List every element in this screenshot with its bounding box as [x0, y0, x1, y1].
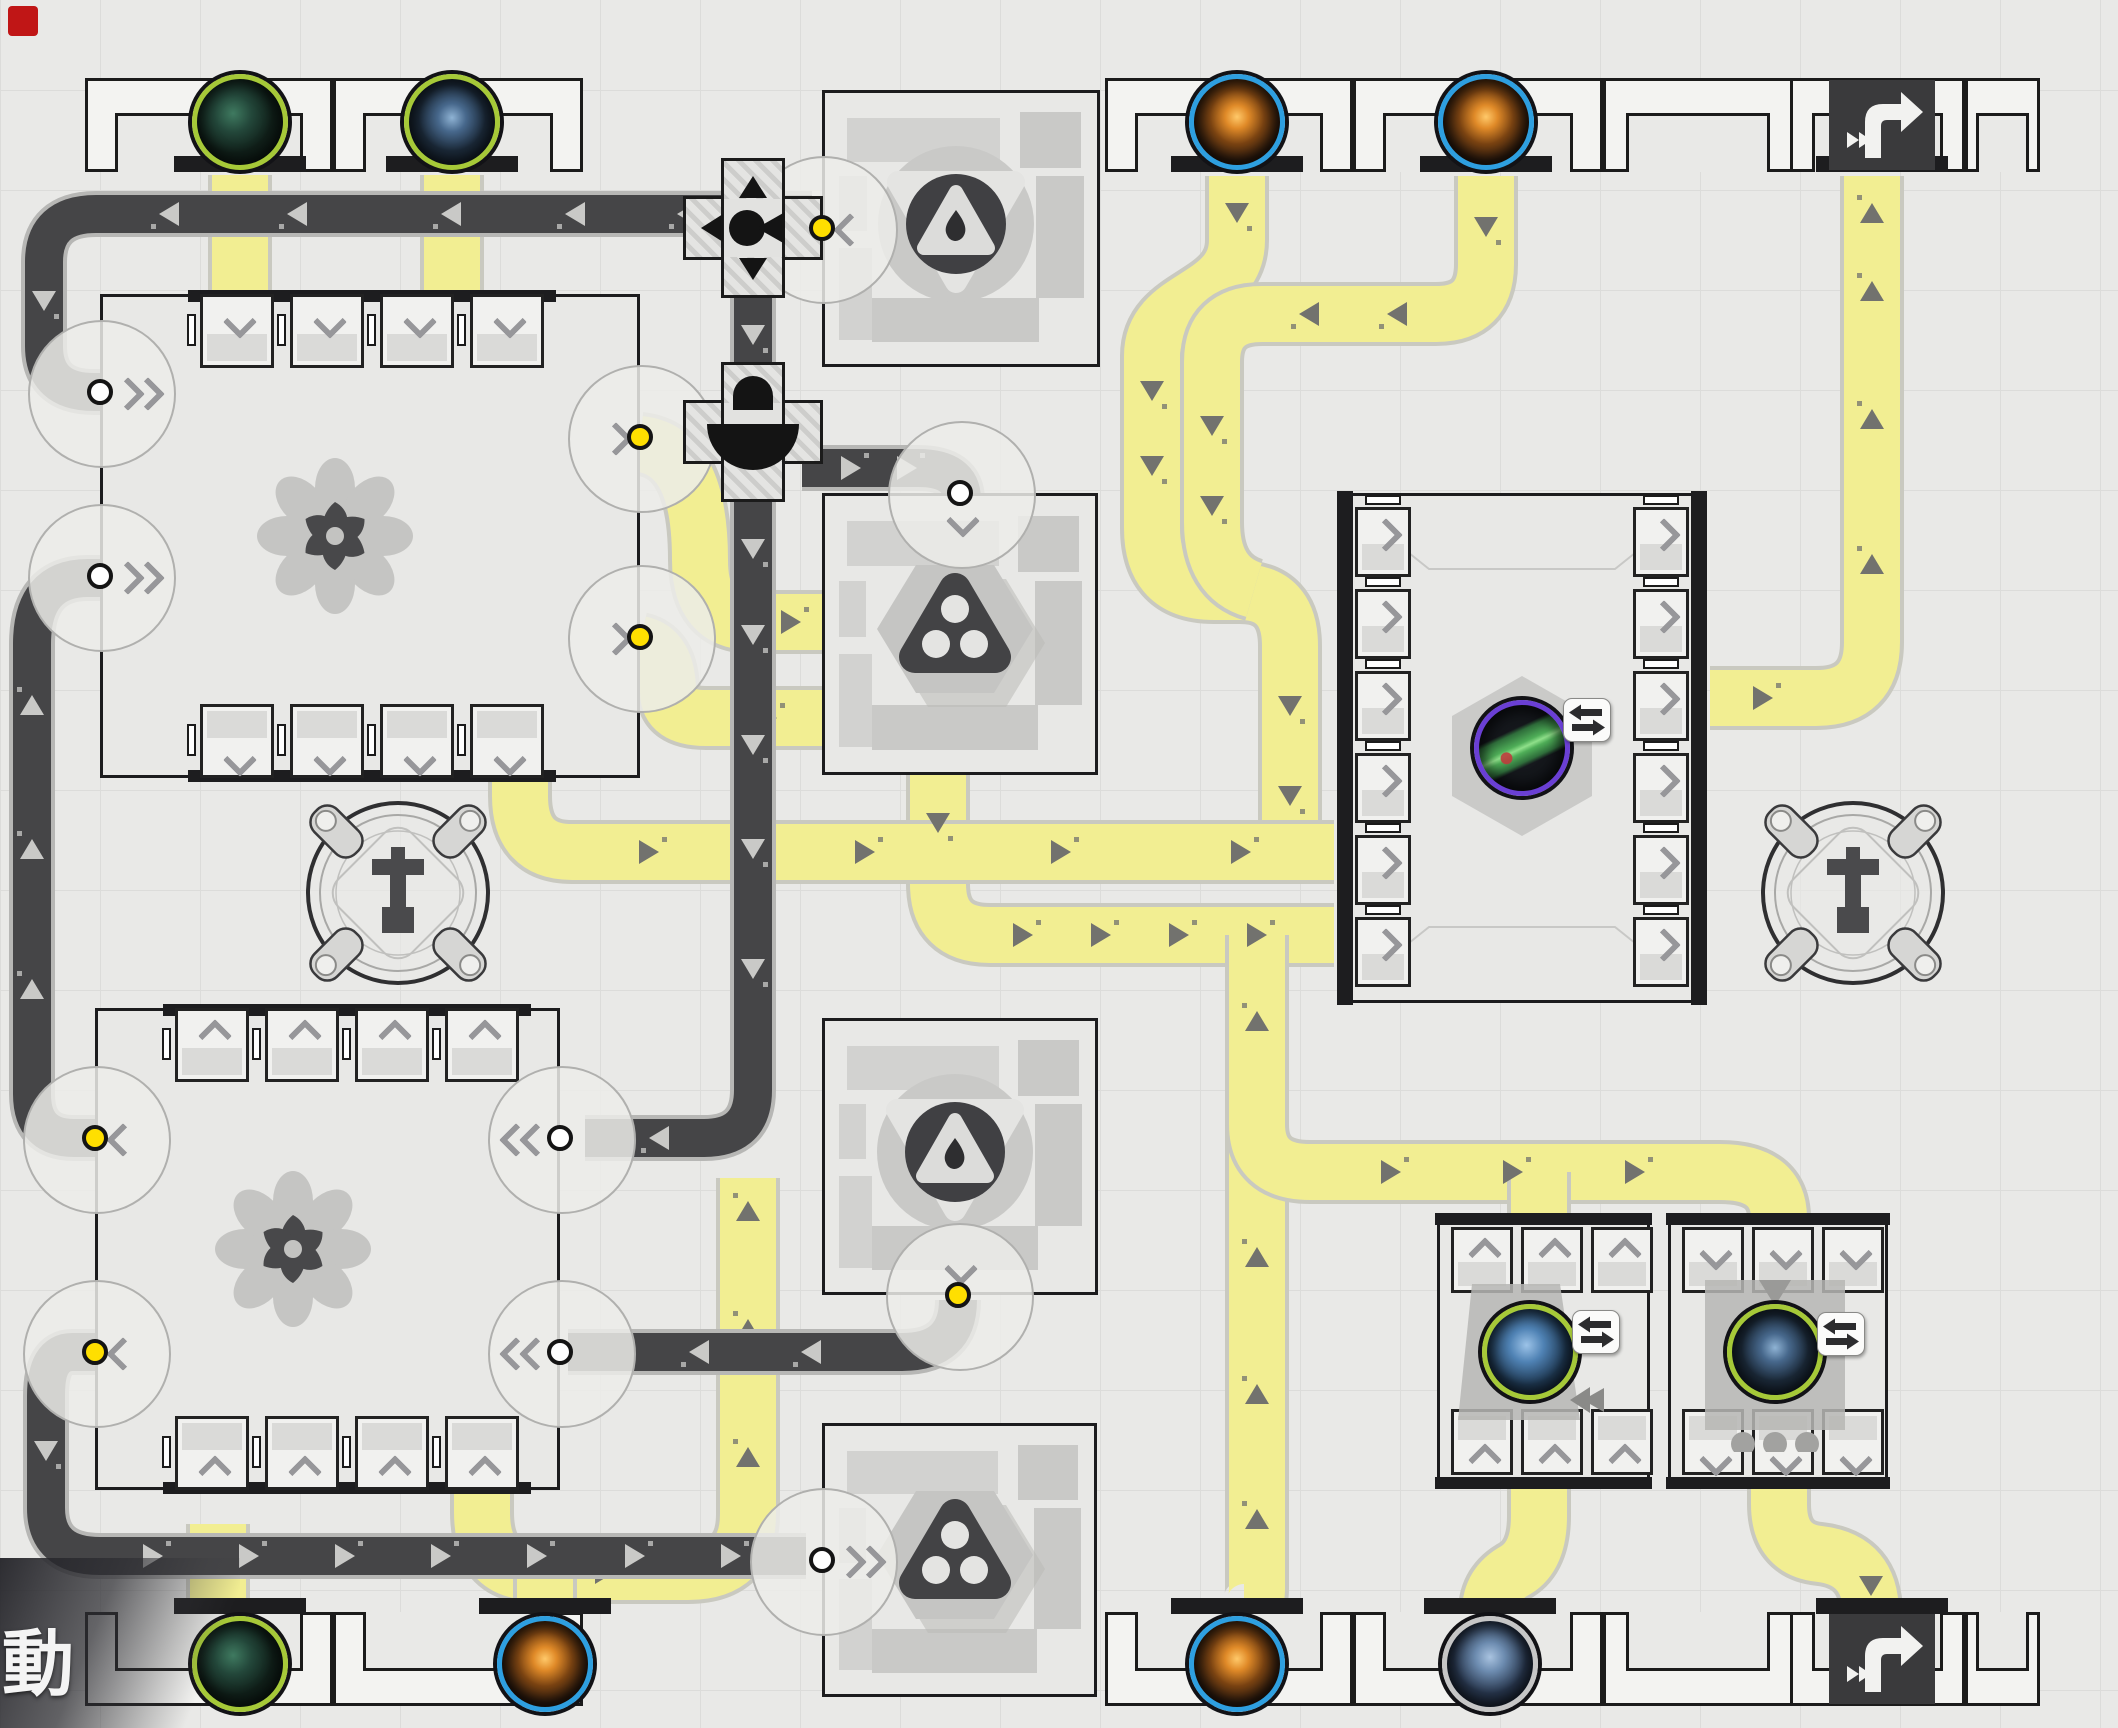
- machine-decor: [1034, 1508, 1081, 1629]
- slot-shade: [1829, 1416, 1877, 1440]
- machine-slot: [1451, 1227, 1513, 1293]
- slot-tick: [432, 1028, 441, 1060]
- machine-slot: [1355, 671, 1411, 741]
- slot-tick: [1365, 495, 1401, 505]
- machine-decor: [1035, 581, 1082, 705]
- slot-tick: [1643, 823, 1679, 833]
- assembler-side-rail: [1337, 491, 1353, 1005]
- port-dot[interactable]: [547, 1339, 573, 1365]
- chevron-down-icon: [313, 743, 347, 777]
- chevron-down-icon: [493, 743, 527, 777]
- duplicator-left-resource-orb[interactable]: [1482, 1304, 1578, 1400]
- port-dot[interactable]: [87, 563, 113, 589]
- port-dot[interactable]: [547, 1125, 573, 1151]
- port-dot[interactable]: [809, 1547, 835, 1573]
- machine-slot: [175, 1416, 249, 1490]
- machine-slot: [1591, 1409, 1653, 1475]
- slot-shade: [1689, 1416, 1737, 1440]
- port-dot[interactable]: [82, 1339, 108, 1365]
- port-dot[interactable]: [627, 624, 653, 650]
- slot-shade: [452, 1423, 512, 1450]
- action-label: 動: [2, 1605, 74, 1710]
- chevron-down-icon: [223, 743, 257, 777]
- machine-slot: [1521, 1227, 1583, 1293]
- machine-slot: [1355, 507, 1411, 577]
- machine-decor: [1036, 176, 1083, 298]
- splitter-core: [724, 199, 782, 257]
- slot-tick: [1643, 741, 1679, 751]
- machine-slot: [380, 294, 454, 368]
- slot-tick: [162, 1436, 171, 1468]
- machine-slot: [1355, 589, 1411, 659]
- machine-slot: [265, 1008, 339, 1082]
- ore-port-orange-cube[interactable]: [1438, 74, 1534, 170]
- slot-shade: [387, 711, 447, 738]
- machine-decor: [1018, 1445, 1079, 1500]
- machine-slot: [1633, 917, 1689, 987]
- machine-slot: [1521, 1409, 1583, 1475]
- machine-slot: [1633, 589, 1689, 659]
- swap-badge-icon: [1817, 1312, 1865, 1356]
- wall-port-module[interactable]: [1603, 78, 1793, 172]
- port-dot[interactable]: [87, 379, 113, 405]
- machine-slot: [1633, 753, 1689, 823]
- machine-slot: [290, 294, 364, 368]
- chevron-down-icon: [403, 743, 437, 777]
- slot-tick: [457, 724, 466, 756]
- slot-shade: [477, 334, 537, 361]
- machine-slot: [445, 1008, 519, 1082]
- port-dot[interactable]: [82, 1125, 108, 1151]
- port-dot[interactable]: [627, 424, 653, 450]
- slot-tick: [1643, 659, 1679, 669]
- slot-shade: [272, 1048, 332, 1075]
- delivery-door-port[interactable]: [1829, 1614, 1935, 1704]
- product-item[interactable]: [1474, 700, 1570, 796]
- port-dot[interactable]: [809, 215, 835, 241]
- slot-shade: [387, 334, 447, 361]
- processor-upper[interactable]: [100, 294, 640, 778]
- slot-shade: [452, 1048, 512, 1075]
- machine-slot: [1355, 835, 1411, 905]
- machine-decor: [1035, 1104, 1082, 1226]
- machine-slot: [265, 1416, 339, 1490]
- dock-bar: [1435, 1477, 1652, 1489]
- machine-slot: [1355, 917, 1411, 987]
- slot-shade: [297, 334, 357, 361]
- slot-shade: [182, 1423, 242, 1450]
- wall-cavity: [1626, 113, 1770, 172]
- slot-tick: [187, 724, 196, 756]
- slot-tick: [457, 314, 466, 346]
- slot-shade: [477, 711, 537, 738]
- dock-bar: [1435, 1213, 1652, 1225]
- slot-tick: [1365, 741, 1401, 751]
- action-button[interactable]: 動: [0, 1558, 240, 1728]
- machine-slot: [200, 704, 274, 778]
- swap-badge-icon: [1572, 1310, 1620, 1354]
- machine-slot: [445, 1416, 519, 1490]
- machine-decor: [847, 1451, 998, 1495]
- slot-tick: [277, 314, 286, 346]
- ore-port-blue-rock[interactable]: [404, 74, 500, 170]
- slot-tick: [432, 1436, 441, 1468]
- machine-decor: [839, 654, 872, 747]
- chevron-up-icon: [1538, 1443, 1572, 1477]
- chevron-up-icon: [1468, 1443, 1502, 1477]
- factory-map: 動: [0, 0, 2118, 1728]
- chevron-down-icon: [1769, 1443, 1803, 1477]
- machine-decor: [872, 298, 1039, 342]
- slot-tick: [1365, 823, 1401, 833]
- wall-port-module[interactable]: [1965, 1612, 2040, 1706]
- ore-port-orange-cube[interactable]: [497, 1616, 593, 1712]
- splitter-core: [724, 403, 782, 461]
- machine-slot: [1633, 835, 1689, 905]
- slot-shade: [207, 334, 267, 361]
- chevron-down-icon: [1699, 1443, 1733, 1477]
- port-dock-bar: [1816, 1598, 1948, 1614]
- machine-slot: [1451, 1409, 1513, 1475]
- slot-shade: [207, 711, 267, 738]
- machine-slot: [1822, 1227, 1884, 1293]
- slot-shade: [362, 1048, 422, 1075]
- slot-tick: [342, 1028, 351, 1060]
- slot-tick: [342, 1436, 351, 1468]
- machine-slot: [1355, 753, 1411, 823]
- swap-badge-icon: [1563, 698, 1611, 742]
- chevron-up-icon: [1608, 1443, 1642, 1477]
- slot-shade: [1528, 1416, 1576, 1440]
- port-dock-bar: [479, 1598, 611, 1614]
- machine-slot: [1752, 1409, 1814, 1475]
- slot-shade: [297, 711, 357, 738]
- ore-port-orange-cube[interactable]: [1189, 74, 1285, 170]
- machine-slot: [470, 704, 544, 778]
- ore-port-blue-tower[interactable]: [1442, 1616, 1538, 1712]
- wall-port-module[interactable]: [1965, 78, 2040, 172]
- wall-cavity: [1626, 1612, 1770, 1671]
- machine-slot: [1822, 1409, 1884, 1475]
- port-dock-bar: [1171, 1598, 1303, 1614]
- delivery-door-port[interactable]: [1829, 80, 1935, 170]
- machine-slot: [1682, 1409, 1744, 1475]
- slot-tick: [1365, 577, 1401, 587]
- machine-slot: [1752, 1227, 1814, 1293]
- slot-tick: [367, 314, 376, 346]
- assembler-side-rail: [1691, 491, 1707, 1005]
- machine-slot: [290, 704, 364, 778]
- machine-slot: [1633, 671, 1689, 741]
- machine-slot: [355, 1416, 429, 1490]
- slot-tick: [1643, 495, 1679, 505]
- slot-shade: [182, 1048, 242, 1075]
- slot-tick: [252, 1436, 261, 1468]
- slot-tick: [187, 314, 196, 346]
- machine-decor: [847, 1046, 999, 1090]
- slot-shade: [1598, 1416, 1646, 1440]
- slot-shade: [272, 1423, 332, 1450]
- machine-decor: [839, 1104, 867, 1159]
- slot-tick: [162, 1028, 171, 1060]
- machine-decor: [872, 1629, 1037, 1673]
- machine-decor: [1020, 112, 1081, 167]
- slot-tick: [1643, 905, 1679, 915]
- machine-slot: [355, 1008, 429, 1082]
- chevron-up-icon: [378, 1455, 412, 1489]
- duplicator-right-resource-orb[interactable]: [1727, 1304, 1823, 1400]
- port-dot[interactable]: [947, 480, 973, 506]
- machine-slot: [1591, 1227, 1653, 1293]
- map-marker-icon: [8, 6, 38, 36]
- ore-port-orange-cube[interactable]: [1189, 1616, 1285, 1712]
- slot-shade: [1759, 1416, 1807, 1440]
- machine-slot: [470, 294, 544, 368]
- port-dot[interactable]: [945, 1282, 971, 1308]
- machine-slot: [175, 1008, 249, 1082]
- ore-port-green-crystal[interactable]: [192, 74, 288, 170]
- chevron-up-icon: [198, 1455, 232, 1489]
- slot-shade: [1458, 1416, 1506, 1440]
- machine-slot: [200, 294, 274, 368]
- chevron-up-icon: [288, 1455, 322, 1489]
- dock-bar: [1666, 1477, 1890, 1489]
- machine-slot: [380, 704, 454, 778]
- slot-tick: [1365, 905, 1401, 915]
- chevron-up-icon: [468, 1455, 502, 1489]
- machine-decor: [839, 1176, 872, 1267]
- machine-decor: [1018, 1040, 1079, 1095]
- slot-tick: [277, 724, 286, 756]
- slot-tick: [367, 724, 376, 756]
- machine-decor: [839, 581, 867, 637]
- machine-slot: [1682, 1227, 1744, 1293]
- wall-cavity: [1976, 113, 2030, 172]
- port-dock-bar: [1424, 1598, 1556, 1614]
- machine-slot: [1633, 507, 1689, 577]
- chevron-down-icon: [1839, 1443, 1873, 1477]
- dock-bar: [1666, 1213, 1890, 1225]
- slot-tick: [1643, 577, 1679, 587]
- machine-decor: [847, 118, 1000, 162]
- slot-tick: [1365, 659, 1401, 669]
- wall-port-module[interactable]: [1603, 1612, 1793, 1706]
- slot-shade: [362, 1423, 422, 1450]
- slot-tick: [252, 1028, 261, 1060]
- machine-decor: [872, 705, 1038, 750]
- wall-cavity: [1976, 1612, 2030, 1671]
